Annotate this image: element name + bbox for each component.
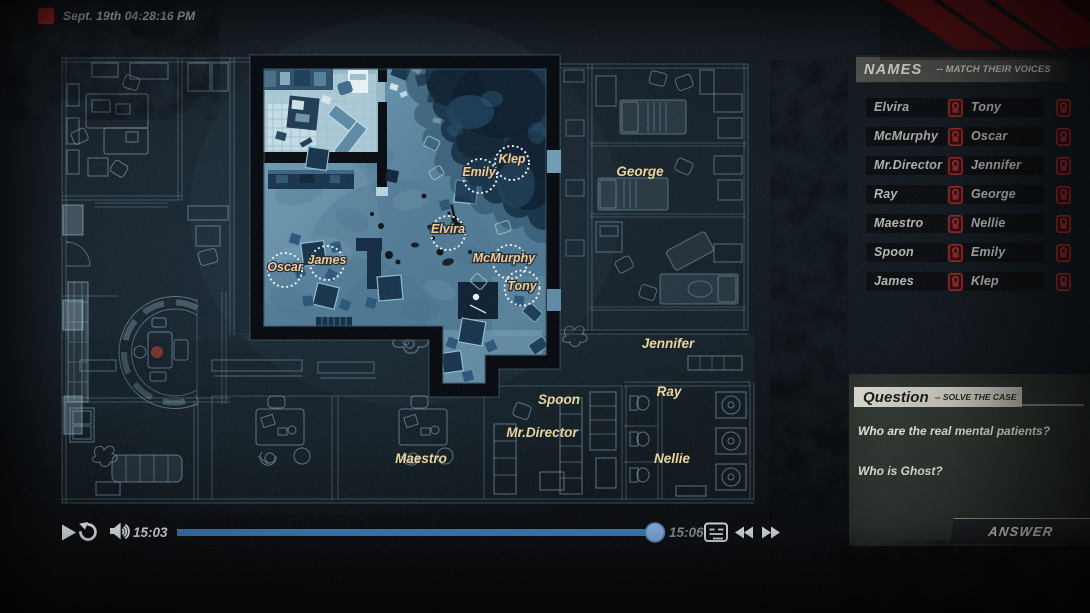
svg-text:Nellie: Nellie — [654, 451, 691, 466]
svg-text:Klep: Klep — [498, 152, 525, 166]
svg-text:Jennifer: Jennifer — [642, 336, 695, 351]
svg-text:Oscar: Oscar — [267, 260, 304, 274]
svg-text:Ray: Ray — [657, 384, 683, 399]
svg-text:Mr.Director: Mr.Director — [506, 425, 578, 440]
svg-text:15:03: 15:03 — [133, 525, 168, 540]
svg-text:McMurphy: McMurphy — [473, 251, 537, 265]
svg-text:15:06: 15:06 — [669, 525, 704, 540]
svg-text:James: James — [308, 253, 347, 267]
svg-text:Spoon: Spoon — [538, 392, 580, 407]
svg-text:Tony: Tony — [507, 279, 537, 293]
svg-text:Maestro: Maestro — [395, 451, 447, 466]
svg-text:Emily: Emily — [462, 165, 496, 179]
svg-text:George: George — [616, 164, 664, 179]
svg-text:Elvira: Elvira — [431, 222, 465, 236]
